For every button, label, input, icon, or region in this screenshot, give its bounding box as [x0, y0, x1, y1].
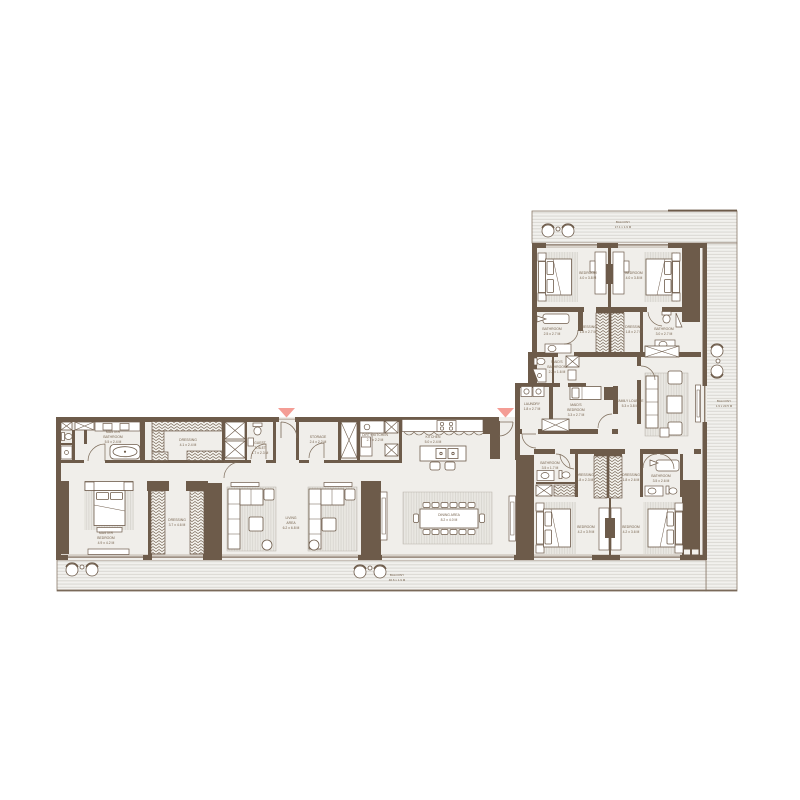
svg-text:3.0 x 2.7 M: 3.0 x 2.7 M [656, 332, 673, 336]
svg-text:BEDROOM: BEDROOM [567, 408, 585, 412]
svg-text:STORAGE: STORAGE [310, 435, 327, 439]
svg-text:BEDROOM: BEDROOM [577, 525, 595, 529]
svg-text:DRESSING: DRESSING [579, 325, 597, 329]
svg-text:4.2 x 3.6 M: 4.2 x 3.6 M [623, 530, 640, 534]
svg-text:DRESSING: DRESSING [179, 438, 197, 442]
svg-text:3.5 x 2.6 M: 3.5 x 2.6 M [653, 479, 670, 483]
svg-text:1.8 x 2.7 M: 1.8 x 2.7 M [580, 330, 597, 334]
svg-text:BEDROOM: BEDROOM [625, 271, 643, 275]
svg-text:1.7 x 2.3 M: 1.7 x 2.3 M [252, 451, 269, 455]
svg-text:DIRTY KITCHEN: DIRTY KITCHEN [362, 433, 388, 437]
svg-text:5.3 x 3.8 M: 5.3 x 3.8 M [622, 404, 639, 408]
svg-text:DRESSING: DRESSING [622, 473, 640, 477]
svg-text:LAUNDRY: LAUNDRY [524, 402, 541, 406]
svg-text:BEDROOM: BEDROOM [622, 525, 640, 529]
svg-text:MASTER: MASTER [99, 531, 114, 535]
svg-text:46.6 x 1.9 M: 46.6 x 1.9 M [389, 578, 406, 582]
svg-text:FAMILY LOUNGE: FAMILY LOUNGE [616, 399, 644, 403]
svg-text:4.1 x 2.4 M: 4.1 x 2.4 M [180, 443, 197, 447]
svg-text:DINING AREA: DINING AREA [438, 513, 461, 517]
svg-text:BATHROOM: BATHROOM [651, 474, 671, 478]
svg-text:3.5 x 1.7 M: 3.5 x 1.7 M [542, 466, 559, 470]
svg-text:BEDROOM: BEDROOM [579, 271, 597, 275]
svg-text:6.2 x 6.8 M: 6.2 x 6.8 M [283, 526, 300, 530]
svg-text:4.0 x 3.8 M: 4.0 x 3.8 M [626, 276, 643, 280]
svg-text:5.5 x 2.4 M: 5.5 x 2.4 M [105, 440, 122, 444]
svg-text:1.9 x 23.5 M: 1.9 x 23.5 M [716, 404, 733, 408]
svg-text:BATHROOM: BATHROOM [540, 461, 560, 465]
svg-text:BALCONY: BALCONY [717, 399, 731, 403]
svg-text:TOILET: TOILET [254, 446, 266, 450]
svg-text:2.5 x 2.7 M: 2.5 x 2.7 M [544, 332, 561, 336]
svg-text:KITCHEN: KITCHEN [426, 435, 441, 439]
svg-text:3.3 x 2.7 M: 3.3 x 2.7 M [568, 413, 585, 417]
svg-text:GUEST: GUEST [254, 441, 266, 445]
svg-text:4.2 x 3.9 M: 4.2 x 3.9 M [578, 530, 595, 534]
svg-text:8.2 x 4.0 M: 8.2 x 4.0 M [441, 518, 458, 522]
svg-text:4.9 x 4.2 M: 4.9 x 4.2 M [98, 541, 115, 545]
svg-text:MASTER: MASTER [106, 430, 121, 434]
svg-text:BATHROOM: BATHROOM [542, 327, 562, 331]
svg-text:DRESSING: DRESSING [168, 518, 186, 522]
svg-text:2.7 x 2.2 M: 2.7 x 2.2 M [367, 438, 384, 442]
svg-text:BATHROOM: BATHROOM [654, 327, 674, 331]
svg-text:BEDROOM: BEDROOM [97, 536, 115, 540]
svg-text:5.0 x 2.4 M: 5.0 x 2.4 M [425, 440, 442, 444]
svg-text:DRESSING: DRESSING [625, 325, 643, 329]
svg-text:1.8 x 2.7 M: 1.8 x 2.7 M [524, 407, 541, 411]
svg-text:1.8 x 2.3 M: 1.8 x 2.3 M [577, 478, 594, 482]
svg-text:2.2 x 1.6 M: 2.2 x 1.6 M [549, 370, 566, 374]
svg-text:2.4 x 2.2 M: 2.4 x 2.2 M [310, 440, 327, 444]
svg-text:17.1 x 1.9 M: 17.1 x 1.9 M [615, 225, 632, 229]
svg-text:BALCONY: BALCONY [616, 220, 630, 224]
svg-text:BALCONY: BALCONY [390, 573, 404, 577]
svg-text:MAID'S: MAID'S [551, 360, 563, 364]
svg-text:MAID'S: MAID'S [570, 403, 582, 407]
svg-text:AREA: AREA [286, 521, 296, 525]
svg-text:BATHROOM: BATHROOM [103, 435, 123, 439]
svg-text:DRESSING: DRESSING [576, 473, 594, 477]
svg-text:1.8 x 2.6 M: 1.8 x 2.6 M [623, 478, 640, 482]
svg-text:3.7 x 4.6 M: 3.7 x 4.6 M [169, 523, 186, 527]
svg-text:4.0 x 3.8 M: 4.0 x 3.8 M [580, 276, 597, 280]
svg-text:BATHROOM: BATHROOM [547, 365, 567, 369]
svg-text:LIVING: LIVING [285, 516, 296, 520]
svg-text:1.8 x 2.7 M: 1.8 x 2.7 M [626, 330, 643, 334]
